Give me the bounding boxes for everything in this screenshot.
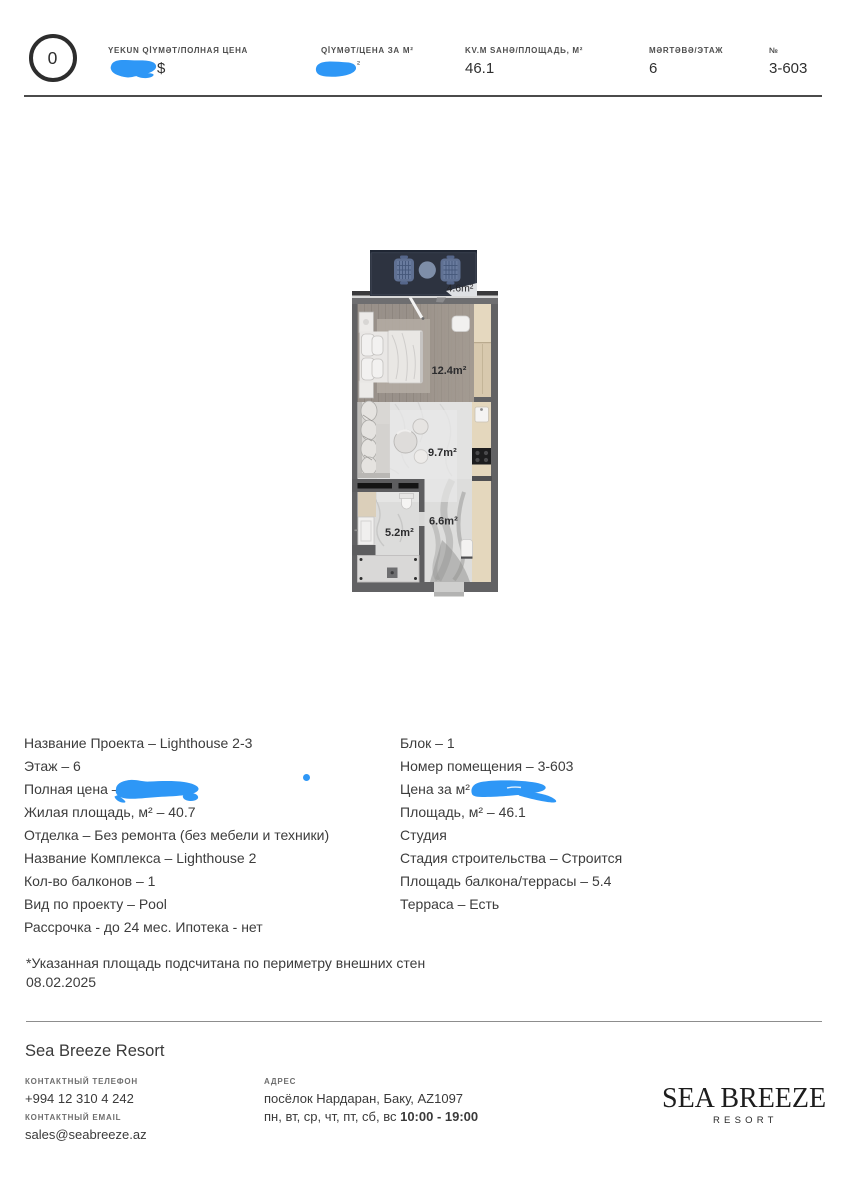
svg-text:12.4m²: 12.4m² <box>432 365 467 377</box>
svg-text:6.6m²: 6.6m² <box>429 516 458 528</box>
svg-text:4.6m²: 4.6m² <box>447 283 474 295</box>
svg-text:²: ² <box>357 59 360 69</box>
svg-text:5.2m²: 5.2m² <box>385 527 414 539</box>
svg-text:9.7m²: 9.7m² <box>428 447 457 459</box>
